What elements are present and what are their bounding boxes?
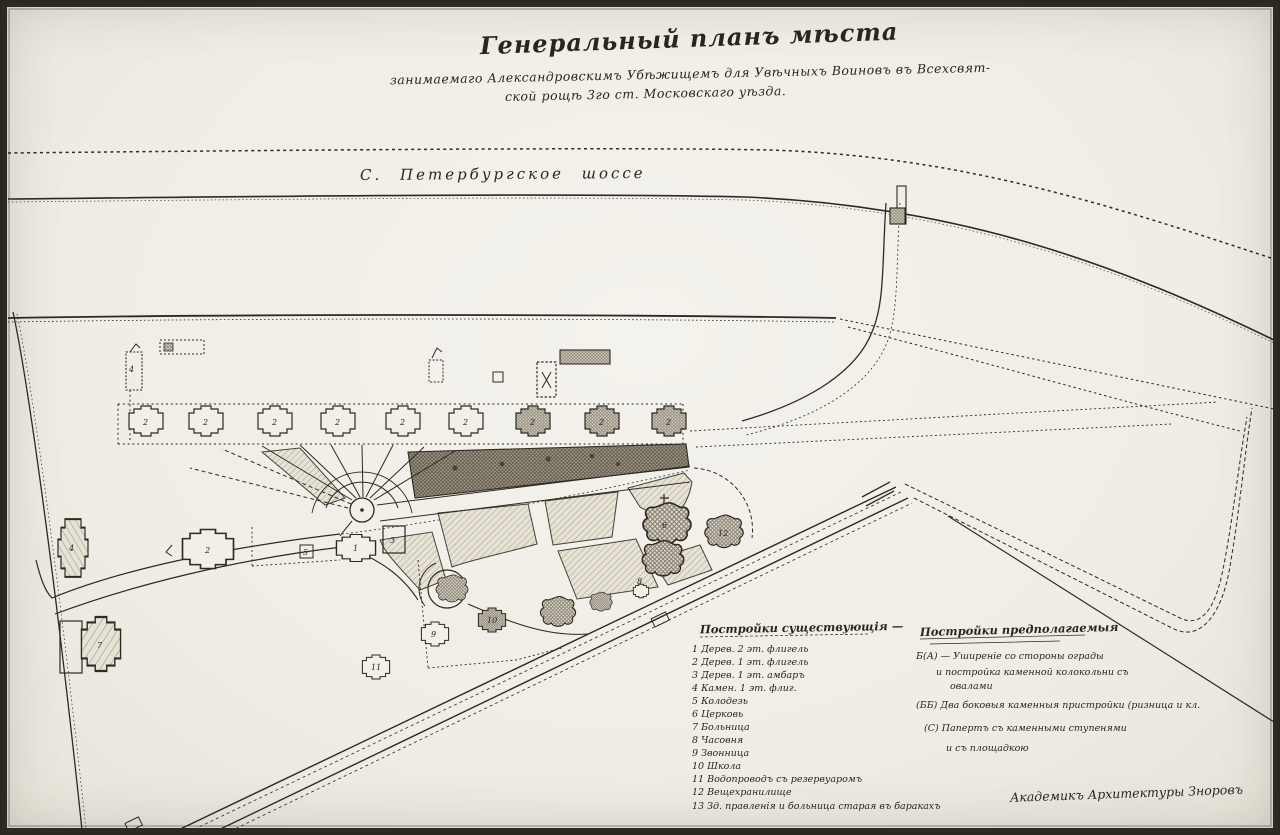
svg-text:5: 5 (303, 548, 308, 557)
legend-item: 5 Колодезь (692, 696, 748, 707)
legend-item: 8 Часовня (692, 735, 743, 746)
legend-item: 10 Школа (692, 761, 741, 772)
legend-item: 4 Камен. 1 эт. флиг. (691, 683, 797, 694)
grove-clump (590, 592, 612, 611)
svg-text:2: 2 (665, 418, 671, 427)
legend-item: 1 Дерев. 2 эт. флигель (692, 644, 808, 655)
svg-text:2: 2 (202, 418, 208, 427)
legend-item: 7 Больница (692, 722, 750, 733)
northwest-outbuildings: 4 (126, 340, 610, 397)
gate-lodge (890, 186, 906, 224)
map-title: Генеральный планъ мѣста (478, 17, 898, 61)
highway-label: С. Петербургское шоссе (360, 164, 646, 184)
svg-text:11: 11 (371, 663, 381, 672)
legend-item: 13 Зд. правленія и больница старая въ ба… (692, 801, 940, 812)
svg-text:2: 2 (399, 418, 405, 427)
fountain-island (436, 575, 468, 602)
west-structures: 4 7 (58, 519, 121, 673)
site-plan-map: С. Петербургское шоссе Генеральный планъ… (0, 0, 1280, 835)
barracks-row: 2 2 2 2 2 2 2 2 2 (118, 390, 686, 444)
legend-existing-title: Постройки существующія — (699, 619, 904, 637)
legend-line: (С) Папертъ съ каменными ступенями (924, 723, 1127, 734)
svg-text:1: 1 (353, 544, 358, 553)
legend-item: 12 Вещехранилище (692, 787, 792, 798)
svg-text:3: 3 (390, 536, 395, 545)
church-apse (642, 541, 684, 576)
map-subtitle-2: ской рощѣ 3го ст. Московскаго уѣзда. (505, 83, 787, 104)
architect-signature: Академикъ Архитектуры Зноровъ (1009, 782, 1244, 805)
svg-text:2: 2 (334, 418, 340, 427)
legend-item: 6 Церковь (692, 709, 743, 720)
church-number: 6 (662, 521, 667, 530)
legend-item: 3 Дерев. 1 эт. амбаръ (692, 670, 805, 681)
map-subtitle-1: занимаемаго Александровскимъ Убѣжищемъ д… (390, 60, 991, 88)
legend-proposed: Постройки предполагаемыя Б(А) — Уширеніе… (915, 620, 1200, 754)
scanned-site-plan: С. Петербургское шоссе Генеральный планъ… (0, 0, 1280, 835)
svg-text:8: 8 (637, 577, 642, 586)
legend-item: 11 Водопроводъ съ резервуаромъ (692, 774, 862, 785)
svg-text:10: 10 (487, 616, 497, 625)
svg-text:2: 2 (598, 418, 604, 427)
chapel-building (633, 584, 648, 598)
legend-line: (ББ) Два боковыя каменныя пристройки (ри… (916, 700, 1200, 711)
svg-text:4: 4 (68, 544, 74, 553)
shed-number: 12 (718, 529, 728, 538)
svg-text:2: 2 (529, 418, 535, 427)
legend-item: 2 Дерев. 1 эт. флигель (691, 657, 808, 668)
title-block: Генеральный планъ мѣста занимаемаго Алек… (390, 17, 991, 104)
svg-text:2: 2 (271, 418, 277, 427)
legend-line: овалами (950, 681, 993, 692)
svg-text:2: 2 (462, 418, 468, 427)
hospital-complex: 7 (60, 617, 121, 673)
legend-line: и постройка каменной колокольни съ (936, 667, 1129, 678)
legend-item: 9 Звонница (692, 748, 749, 759)
svg-text:2: 2 (142, 418, 148, 427)
svg-text:9: 9 (431, 630, 436, 639)
legend-existing: Постройки существующія — 1 Дерев. 2 эт. … (691, 619, 940, 812)
legend-proposed-title: Постройки предполагаемыя (919, 620, 1119, 639)
legend-line: и съ площадкою (946, 743, 1029, 754)
svg-text:2: 2 (204, 546, 210, 555)
grove-clump (540, 596, 575, 626)
garden-buildings: 1 3 2 5 (166, 526, 405, 569)
svg-text:4: 4 (128, 365, 134, 374)
entrance-road (742, 186, 906, 435)
legend-line: Б(А) — Уширеніе со стороны ограды (915, 651, 1104, 662)
